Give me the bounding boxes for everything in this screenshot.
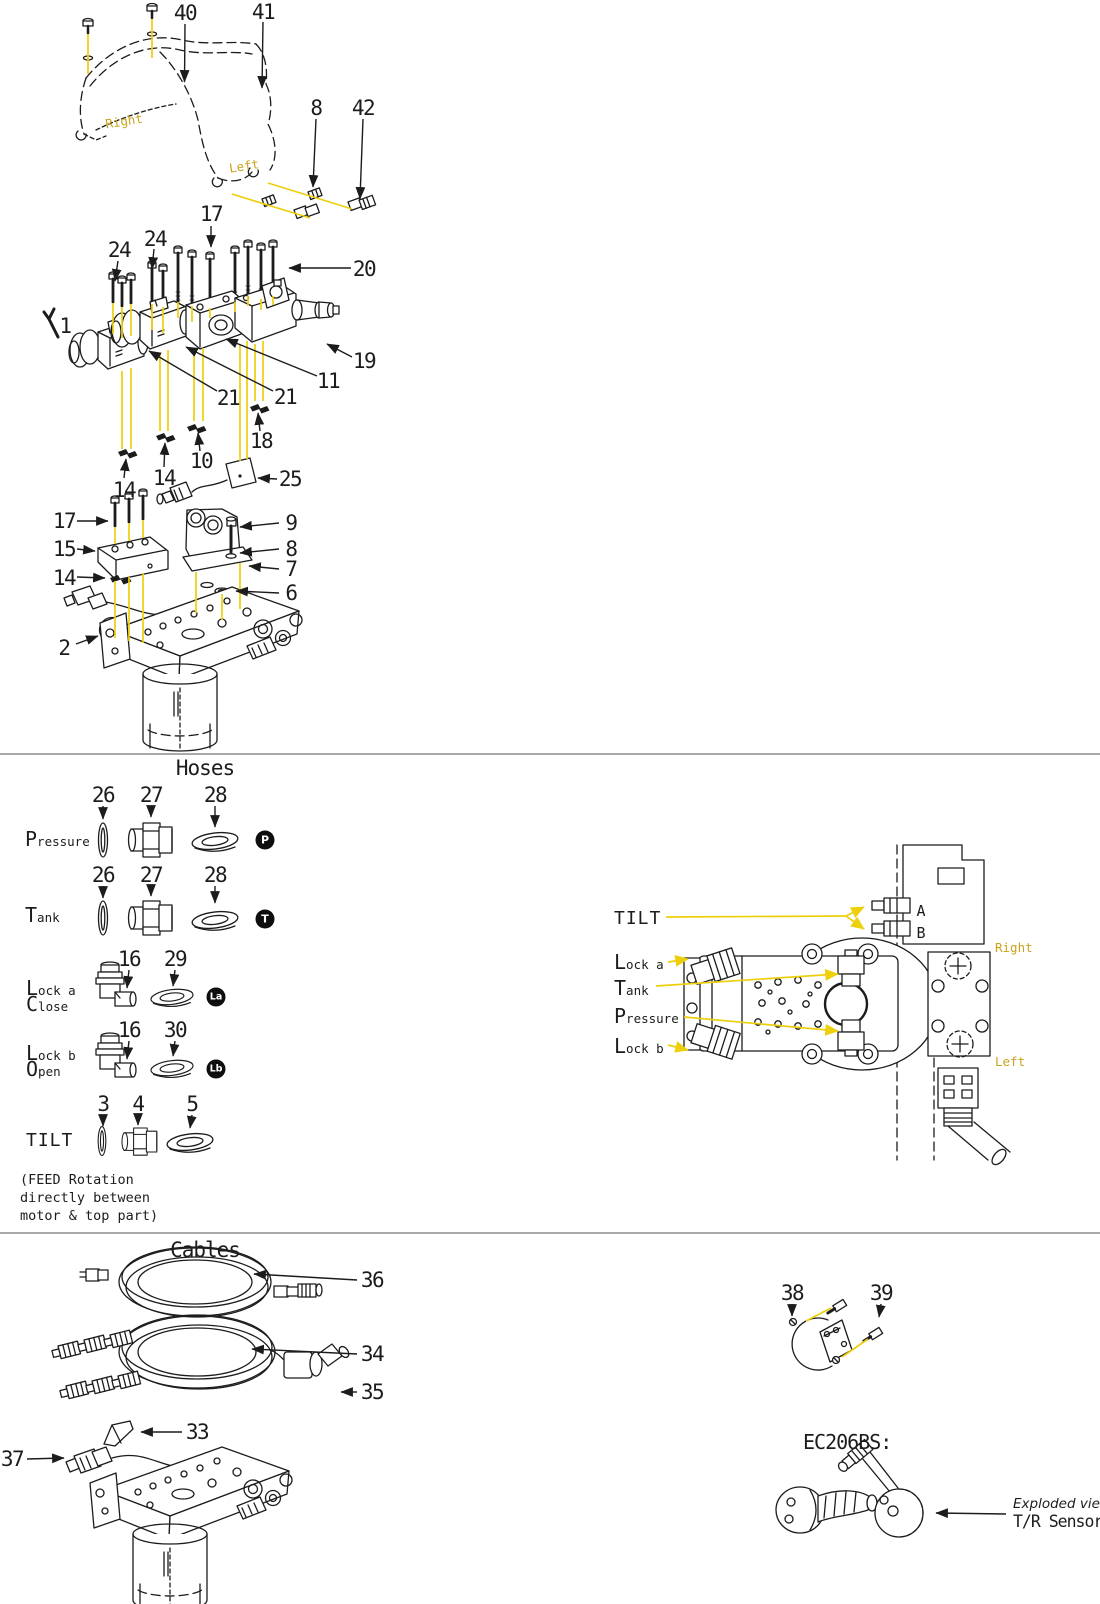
callout-27-pressure: 27 <box>140 783 162 807</box>
exploded-view-label: Exploded view <box>1013 1496 1100 1512</box>
callout-14-a: 14 <box>153 466 175 490</box>
callout-17-block: 17 <box>53 509 75 533</box>
callout-25: 25 <box>279 467 301 491</box>
callout-33: 33 <box>186 1420 208 1444</box>
callout-24-left: 24 <box>108 238 130 262</box>
hoses-section-title: Hoses <box>176 756 234 780</box>
wrench-icon <box>44 309 58 337</box>
view-lock-a-label: Lock a <box>614 955 664 972</box>
view-port-a-label: A <box>916 902 925 920</box>
view-port-b-label: B <box>916 924 925 942</box>
callout-21-left: 21 <box>217 386 239 410</box>
callout-3: 3 <box>97 1092 108 1116</box>
callout-28-pressure: 28 <box>204 783 226 807</box>
connector-35 <box>270 1344 351 1378</box>
callout-34: 34 <box>361 1342 383 1366</box>
callout-5: 5 <box>186 1092 197 1116</box>
callout-11: 11 <box>317 369 339 393</box>
view-lock-b-label: Lock b <box>614 1039 664 1056</box>
cable-marker-33 <box>104 1421 133 1446</box>
tilt-row-label: TILT <box>26 1130 73 1151</box>
view-pressure-label: Pressure <box>614 1009 679 1026</box>
valve-unit-bottom <box>90 1447 292 1604</box>
callout-19: 19 <box>353 349 375 373</box>
hose-parts-tilt-row <box>98 1127 214 1156</box>
callout-28-tank: 28 <box>204 863 226 887</box>
view-tilt-label: TILT <box>614 908 661 929</box>
cover-mounting-screws <box>83 4 157 61</box>
tank-port-fitting <box>838 950 864 986</box>
lock-a-badge: La <box>207 988 226 1007</box>
tank-badge: T <box>256 910 275 929</box>
cables-section-title: Cables <box>170 1238 240 1262</box>
view-left-label: Left <box>995 1054 1025 1069</box>
lock-b-badge: Lb <box>207 1060 226 1079</box>
callout-38: 38 <box>781 1281 803 1305</box>
hose-parts-tank-row <box>99 901 239 935</box>
callout-14-b: 14 <box>113 478 135 502</box>
callout-17-top: 17 <box>200 202 222 226</box>
cover-fasteners-right <box>262 188 376 220</box>
callout-40: 40 <box>174 1 196 25</box>
view-right-label: Right <box>995 940 1033 955</box>
callout-2: 2 <box>58 636 69 660</box>
tr-sensor-left <box>776 1487 877 1533</box>
callout-26-pressure: 26 <box>92 783 114 807</box>
pressure-row-label: Pressure <box>25 832 90 849</box>
callout-18: 18 <box>250 429 272 453</box>
valve-unit-top <box>100 587 302 751</box>
callout-42: 42 <box>352 96 374 120</box>
callout-37: 37 <box>1 1447 23 1471</box>
tank-row-label: Tank <box>25 908 60 925</box>
callout-8-top: 8 <box>310 96 321 120</box>
feed-note-line3: motor & top part) <box>20 1208 158 1224</box>
callout-29: 29 <box>164 947 186 971</box>
sensor-cover-38-39 <box>790 1299 883 1370</box>
tilt-port-b <box>872 921 910 936</box>
callout-16-lock-a: 16 <box>118 947 140 971</box>
callout-35: 35 <box>361 1380 383 1404</box>
close-row-label: Close <box>26 997 68 1014</box>
hose-parts-pressure-row <box>99 823 239 857</box>
pressure-badge: P <box>256 831 275 850</box>
relief-valve-19 <box>235 278 339 342</box>
pressure-port-fitting <box>838 1020 864 1056</box>
callout-10: 10 <box>190 449 212 473</box>
callout-14-c: 14 <box>53 566 75 590</box>
valve-top-view <box>684 845 1010 1167</box>
callout-7: 7 <box>285 557 296 581</box>
callout-6: 6 <box>285 581 296 605</box>
open-row-label: Open <box>26 1062 61 1079</box>
bracket-7-assembly <box>183 509 252 594</box>
callout-39: 39 <box>870 1281 892 1305</box>
tr-sensor-right <box>835 1439 923 1537</box>
callout-27-tank: 27 <box>140 863 162 887</box>
block-15 <box>98 537 168 580</box>
callout-24-mid: 24 <box>144 227 166 251</box>
view-tank-label: Tank <box>614 981 649 998</box>
feed-note-line1: (FEED Rotation <box>20 1172 134 1188</box>
feed-note-line2: directly between <box>20 1190 150 1206</box>
parts-diagram-page: 40 41 8 42 17 24 24 20 1 21 21 11 19 18 … <box>0 0 1100 1604</box>
callout-36: 36 <box>361 1268 383 1292</box>
tr-sensors-label: T/R Sensors <box>1013 1512 1100 1531</box>
callout-15: 15 <box>53 537 75 561</box>
callout-4: 4 <box>132 1092 143 1116</box>
callout-21-right: 21 <box>274 385 296 409</box>
callout-30: 30 <box>164 1018 186 1042</box>
callout-41: 41 <box>252 0 274 24</box>
callout-arrows <box>27 22 1006 1514</box>
callout-1: 1 <box>59 314 70 338</box>
bottom-connector <box>938 1068 1010 1167</box>
callout-16-lock-b: 16 <box>118 1018 140 1042</box>
callout-9: 9 <box>285 511 296 535</box>
tilt-port-a <box>872 898 910 913</box>
ec-model-label: EC206BS: <box>803 1430 891 1454</box>
cable-coil-34 <box>51 1315 275 1400</box>
callout-26-tank: 26 <box>92 863 114 887</box>
callout-20: 20 <box>353 257 375 281</box>
